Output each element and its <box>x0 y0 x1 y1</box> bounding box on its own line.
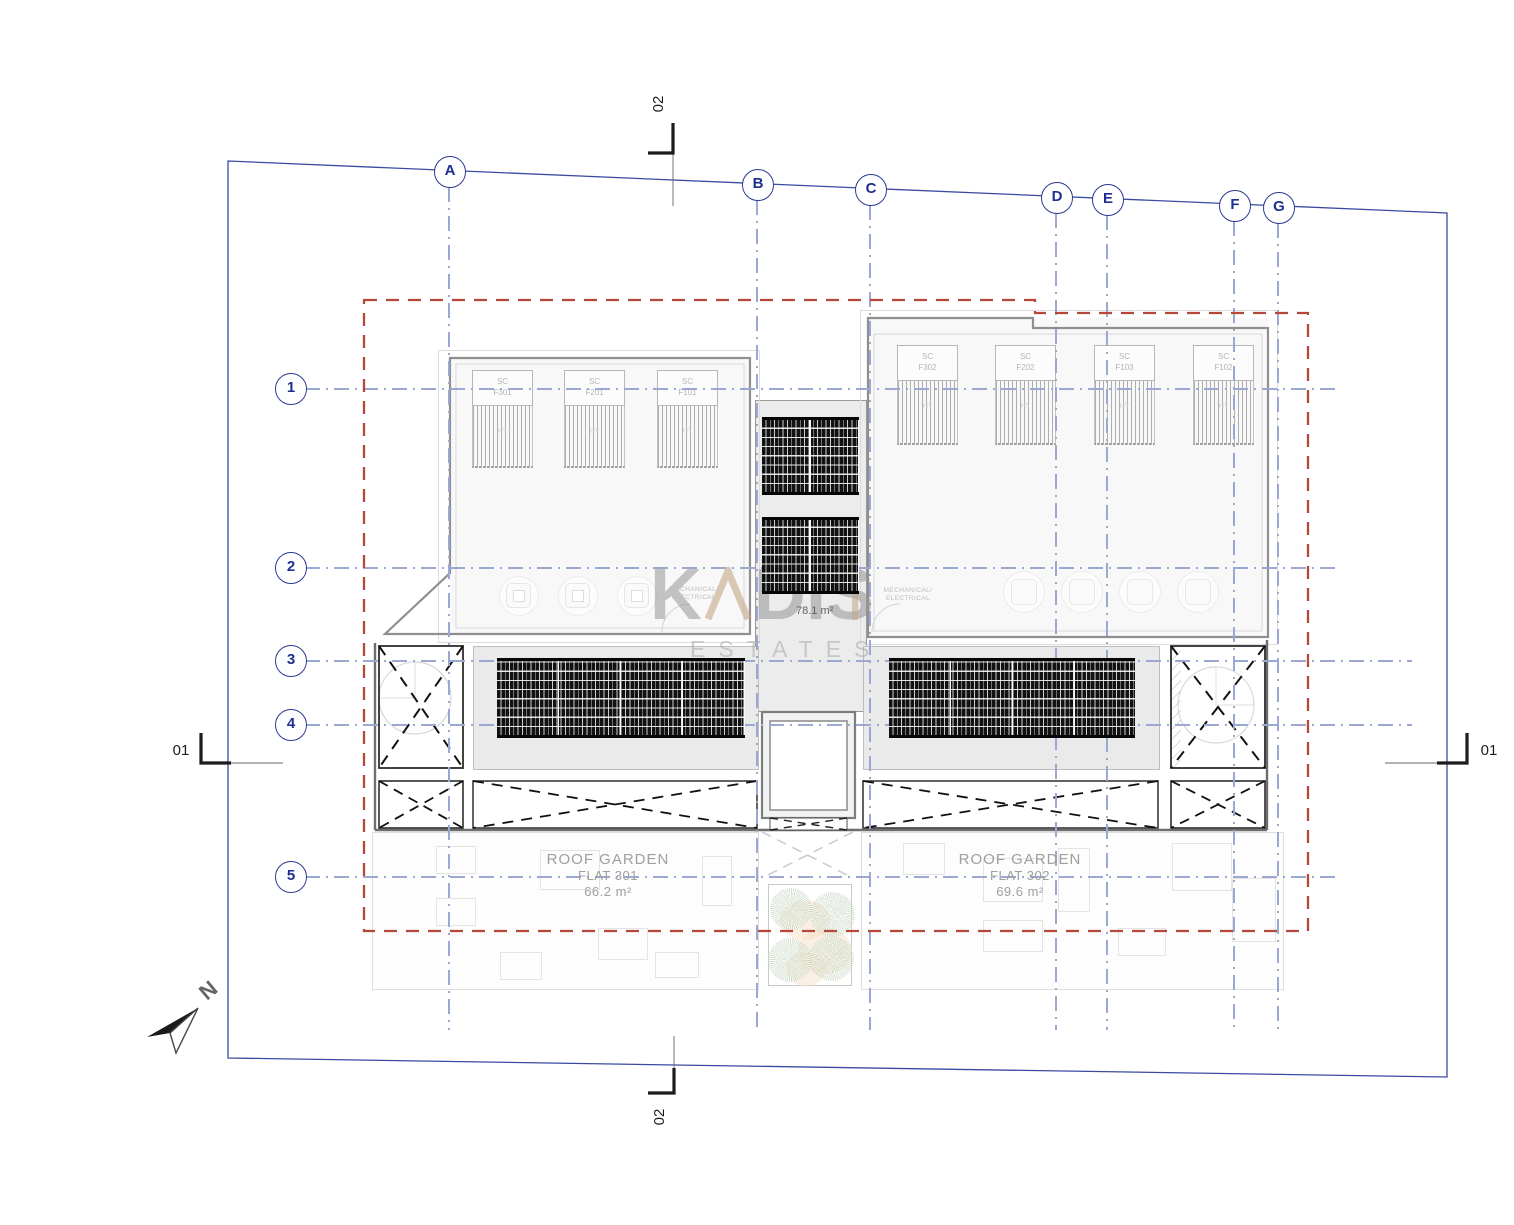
grid-bubble-5: 5 <box>275 861 307 893</box>
grid-bubble-G: G <box>1263 192 1295 224</box>
grid-bubble-A: A <box>434 156 466 188</box>
permit-boundary-red <box>364 300 1308 931</box>
grid-bubble-1: 1 <box>275 373 307 405</box>
grid-bubble-4: 4 <box>275 709 307 741</box>
floor-plan-sheet: 02 02 01 01 N SC F301 HT SC F201 HT SC F… <box>0 0 1514 1225</box>
grid-bubble-F: F <box>1219 190 1251 222</box>
grid-bubble-E: E <box>1092 184 1124 216</box>
grid-bubble-C: C <box>855 174 887 206</box>
grid-bubble-3: 3 <box>275 645 307 677</box>
grid-bubble-2: 2 <box>275 552 307 584</box>
grid-bubble-B: B <box>742 169 774 201</box>
grid-bubble-D: D <box>1041 182 1073 214</box>
